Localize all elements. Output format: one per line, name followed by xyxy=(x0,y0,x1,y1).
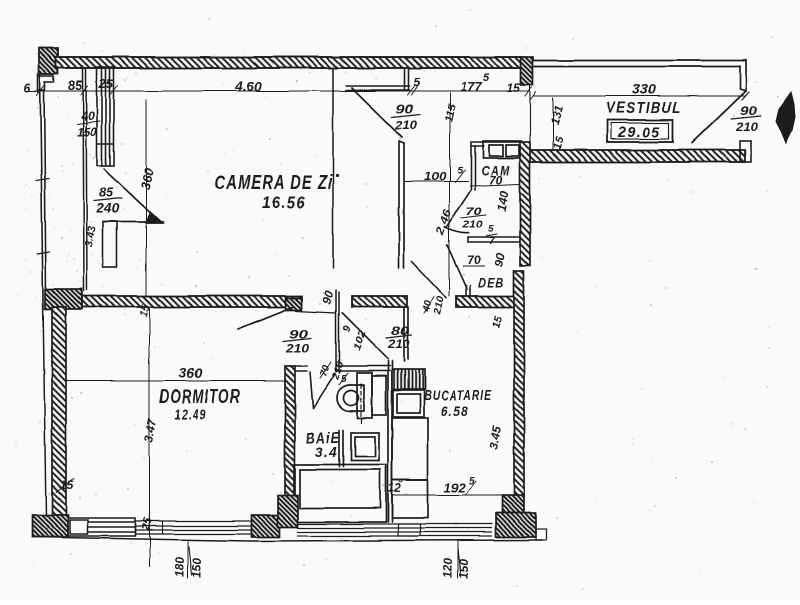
svg-text:16.56: 16.56 xyxy=(262,193,306,212)
svg-text:90: 90 xyxy=(740,104,757,118)
svg-text:5: 5 xyxy=(469,476,475,487)
svg-text:360: 360 xyxy=(179,365,203,381)
svg-text:5: 5 xyxy=(483,72,490,84)
svg-text:240: 240 xyxy=(95,200,120,216)
svg-text:180: 180 xyxy=(173,557,187,577)
svg-text:40: 40 xyxy=(80,109,95,123)
svg-text:150: 150 xyxy=(457,559,471,579)
svg-text:192: 192 xyxy=(444,480,466,495)
svg-text:12.49: 12.49 xyxy=(174,406,206,423)
svg-text:12: 12 xyxy=(388,481,402,495)
svg-text:15: 15 xyxy=(507,81,521,95)
svg-text:210: 210 xyxy=(285,341,310,355)
svg-text:6.58: 6.58 xyxy=(441,403,469,419)
svg-text:DORMITOR: DORMITOR xyxy=(159,387,241,408)
svg-text:4.60: 4.60 xyxy=(234,78,262,94)
svg-text:VESTIBUL: VESTIBUL xyxy=(606,100,682,117)
svg-text:150: 150 xyxy=(77,125,97,139)
svg-text:6: 6 xyxy=(24,81,31,95)
svg-text:210: 210 xyxy=(387,337,410,351)
svg-text:25: 25 xyxy=(98,76,114,91)
svg-text:DEB: DEB xyxy=(478,274,505,290)
svg-text:90: 90 xyxy=(396,102,413,116)
svg-text:5: 5 xyxy=(488,224,494,235)
svg-text:210: 210 xyxy=(735,120,758,134)
svg-text:210: 210 xyxy=(394,118,417,132)
svg-text:330: 330 xyxy=(632,81,656,97)
svg-text:3.4: 3.4 xyxy=(315,444,338,461)
svg-text:90: 90 xyxy=(491,252,507,268)
svg-text:7: 7 xyxy=(489,236,495,247)
svg-text:85: 85 xyxy=(68,78,83,93)
svg-text:70: 70 xyxy=(467,253,481,267)
svg-text:150: 150 xyxy=(190,558,204,578)
svg-text:100: 100 xyxy=(424,170,446,184)
svg-text:CAMERA DE Zi: CAMERA DE Zi xyxy=(215,172,333,194)
svg-text:29.05: 29.05 xyxy=(617,124,661,141)
svg-text:177: 177 xyxy=(460,79,482,94)
svg-text:120: 120 xyxy=(441,558,455,578)
svg-text:85: 85 xyxy=(99,185,114,200)
svg-text:BUCATARIE: BUCATARIE xyxy=(424,387,492,404)
svg-text:210: 210 xyxy=(462,219,484,231)
svg-text:5: 5 xyxy=(457,166,463,177)
